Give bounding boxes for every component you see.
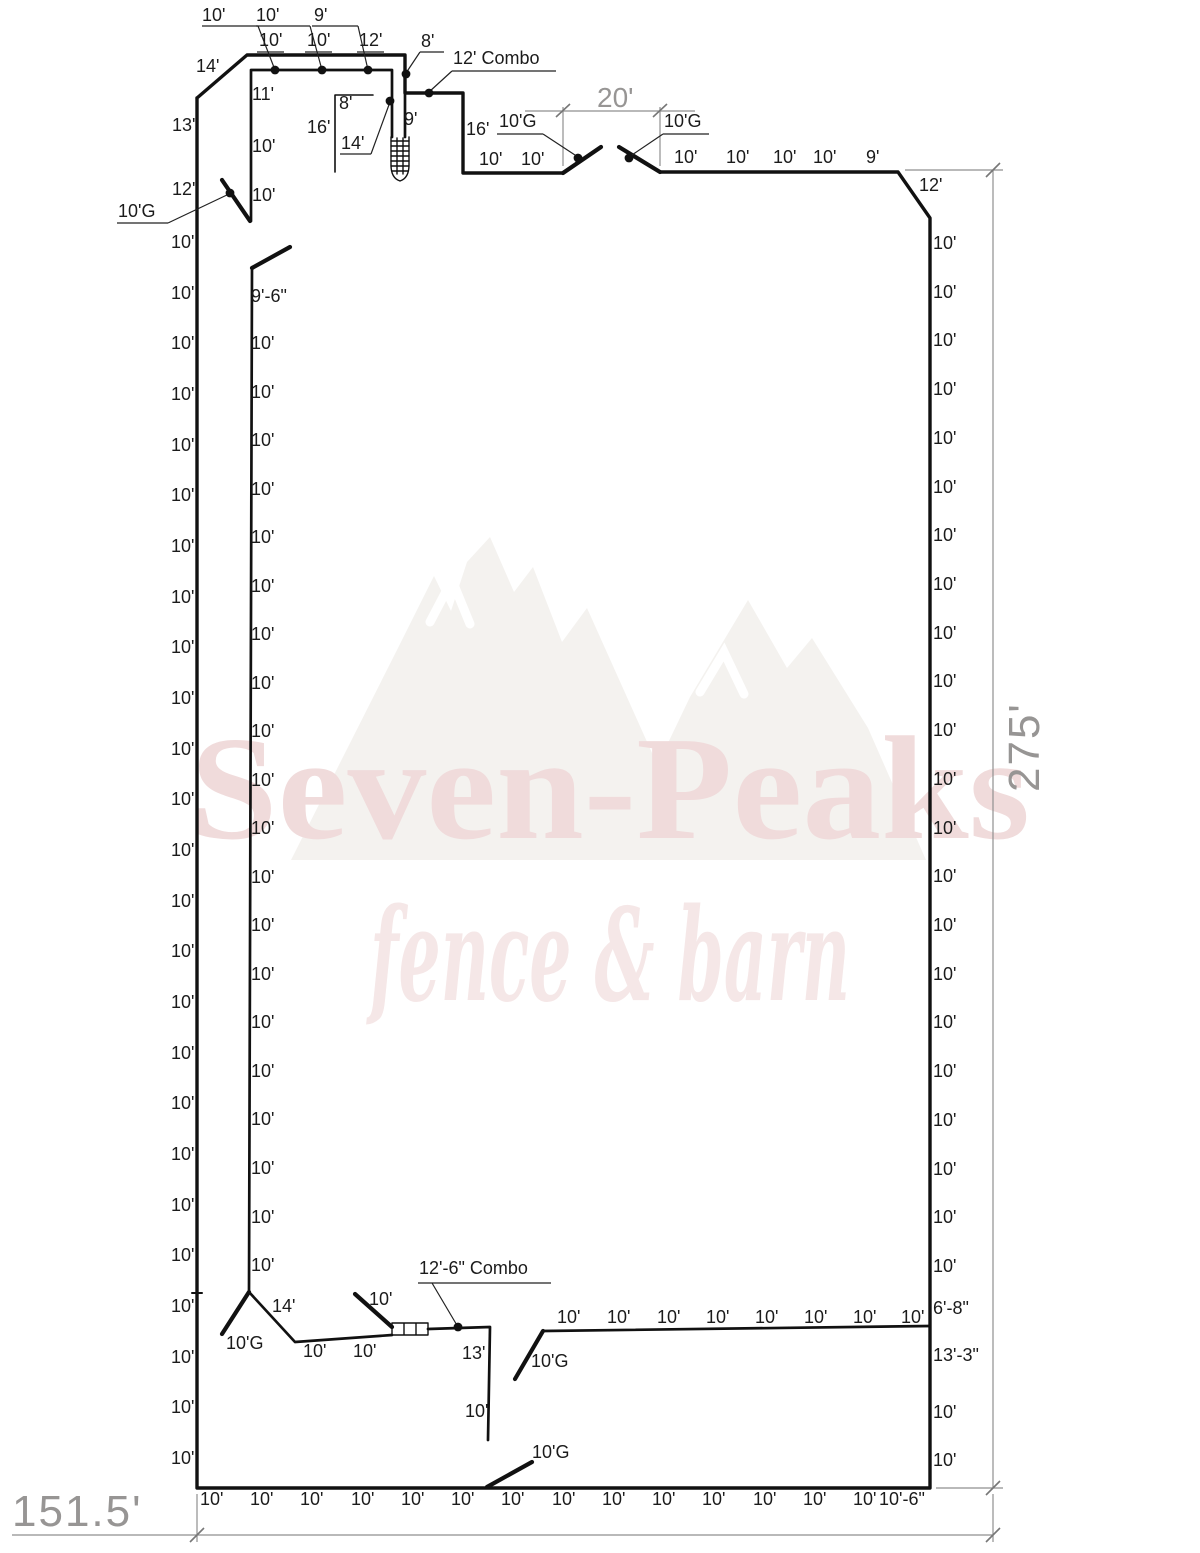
inner-panel-label: 10'	[251, 480, 274, 499]
watermark-brand-text: Seven-Peaks	[190, 707, 1030, 871]
inner-panel-label: 10'	[251, 868, 274, 887]
right-panel-label: 10'	[933, 770, 956, 789]
panel-label: 14'	[196, 57, 219, 76]
left-panel-label: 10'	[171, 284, 194, 303]
right-panel-label: 10'	[933, 478, 956, 497]
right-panel-label: 10'	[933, 380, 956, 399]
bottom-panel-label: 10'	[451, 1490, 474, 1509]
inner-bottom-panel-label: 10'	[804, 1308, 827, 1327]
right-panel-label: 10'	[933, 965, 956, 984]
inner-panel-label: 10'	[251, 771, 274, 790]
overall-height-dimension: 275'	[1000, 702, 1050, 792]
inner-panel-label: 10'	[251, 965, 274, 984]
gate-label: 10'G	[499, 112, 536, 131]
left-panel-label: 10'	[171, 1449, 194, 1468]
inner-panel-label: 10'	[251, 528, 274, 547]
panel-label: 16'	[307, 118, 330, 137]
gate-opening-dimension: 20'	[597, 82, 634, 114]
watermark-tagline-text: fence & barn	[366, 881, 850, 1031]
panel-label: 9'	[404, 110, 417, 129]
right-panel-label: 10'	[933, 575, 956, 594]
gate-label: 10'G	[532, 1443, 569, 1462]
leader-label: 10'	[202, 6, 225, 25]
bottom-panel-label: 10'	[200, 1490, 223, 1509]
panel-label: 16'	[466, 120, 489, 139]
left-panel-label: 10'	[171, 1044, 194, 1063]
right-panel-label: 10'	[933, 526, 956, 545]
panel-label: 10'	[521, 150, 544, 169]
leader-label: 10'	[256, 6, 279, 25]
panel-label: 12'	[919, 176, 942, 195]
gate-label: 10'G	[226, 1334, 263, 1353]
right-panel-label: 10'	[933, 283, 956, 302]
right-panel-label: 10'	[933, 867, 956, 886]
leader-label: 12'-6" Combo	[419, 1259, 528, 1278]
panel-label: 10'	[307, 31, 330, 50]
watermark: Seven-Peaks fence & barn	[190, 537, 1030, 1031]
left-panel-label: 10'	[171, 233, 194, 252]
inner-panel-label: 10'	[251, 625, 274, 644]
right-panel-label: 10'	[933, 1013, 956, 1032]
right-panel-label: 10'	[933, 624, 956, 643]
panel-label: 10'	[303, 1342, 326, 1361]
inner-panel-label: 10'	[251, 383, 274, 402]
left-panel-label: 10'	[171, 638, 194, 657]
right-panel-label: 10'	[933, 721, 956, 740]
left-panel-label: 10'	[171, 993, 194, 1012]
gate-label: 10'G	[118, 202, 155, 221]
panel-label: 13'	[172, 116, 195, 135]
bottom-panel-label: 10'	[501, 1490, 524, 1509]
right-panel-label: 13'-3"	[933, 1346, 979, 1365]
combo-gate-symbol-top	[391, 137, 409, 181]
right-panel-label: 10'	[933, 1257, 956, 1276]
panel-label: 12'	[359, 31, 382, 50]
right-panel-label: 6'-8"	[933, 1299, 969, 1318]
inner-panel-label: 10'	[251, 916, 274, 935]
left-panel-label: 10'	[171, 588, 194, 607]
fence-plan-drawing: Seven-Peaks fence & barn	[0, 0, 1200, 1553]
left-panel-label: 10'	[171, 1348, 194, 1367]
bottom-panel-label: 10'	[853, 1490, 876, 1509]
left-panel-label: 10'	[171, 537, 194, 556]
right-panel-label: 10'	[933, 331, 956, 350]
inner-panel-label: 10'	[251, 819, 274, 838]
right-panel-label: 10'	[933, 1403, 956, 1422]
inner-panel-label: 10'	[251, 431, 274, 450]
bottom-panel-label: 10'	[652, 1490, 675, 1509]
leader-label: 12' Combo	[453, 49, 539, 68]
inner-panel-label: 10'	[251, 577, 274, 596]
panel-label: 14'	[272, 1297, 295, 1316]
inner-panel-label: 10'	[251, 1013, 274, 1032]
inner-bottom-panel-label: 10'	[755, 1308, 778, 1327]
bottom-panel-label: 10'	[300, 1490, 323, 1509]
right-panel-label: 10'	[933, 1111, 956, 1130]
gate-label: 10'G	[531, 1352, 568, 1371]
right-panel-label: 10'	[933, 916, 956, 935]
leader-label: 9'	[314, 6, 327, 25]
inner-bottom-panel-label: 10'	[853, 1308, 876, 1327]
inner-bottom-panel-label: 10'	[901, 1308, 924, 1327]
right-panel-label: 10'	[933, 1208, 956, 1227]
bottom-panel-label: 10'	[753, 1490, 776, 1509]
leader-label: 14'	[341, 134, 364, 153]
panel-label: 13'	[462, 1344, 485, 1363]
inner-panel-label: 10'	[251, 1256, 274, 1275]
left-panel-label: 10'	[171, 1094, 194, 1113]
left-panel-label: 10'	[171, 841, 194, 860]
inner-bottom-panel-label: 10'	[657, 1308, 680, 1327]
bottom-panel-label: 10'	[702, 1490, 725, 1509]
bottom-panel-label: 10'-6"	[879, 1490, 925, 1509]
panel-label: 10'	[479, 150, 502, 169]
left-panel-label: 10'	[171, 334, 194, 353]
left-panel-label: 10'	[171, 1246, 194, 1265]
panel-label: 10'	[252, 137, 275, 156]
inner-panel-label: 10'	[251, 674, 274, 693]
panel-label: 10'	[813, 148, 836, 167]
left-panel-label: 10'	[171, 790, 194, 809]
left-panel-label: 10'	[171, 942, 194, 961]
panel-label: 12'	[172, 180, 195, 199]
left-panel-label: 10'	[171, 689, 194, 708]
right-panel-label: 10'	[933, 1160, 956, 1179]
left-panel-label: 10'	[171, 1297, 194, 1316]
bottom-panel-label: 10'	[351, 1490, 374, 1509]
gate-label: 10'	[369, 1290, 392, 1309]
inner-bottom-panel-label: 10'	[607, 1308, 630, 1327]
inner-panel-label: 10'	[251, 1110, 274, 1129]
right-panel-label: 10'	[933, 1062, 956, 1081]
inner-panel-label: 10'	[251, 334, 274, 353]
right-panel-label: 10'	[933, 1451, 956, 1470]
panel-label: 10'	[674, 148, 697, 167]
right-panel-label: 10'	[933, 429, 956, 448]
bottom-panel-label: 10'	[401, 1490, 424, 1509]
inner-panel-label: 10'	[251, 722, 274, 741]
left-panel-label: 10'	[171, 1145, 194, 1164]
inner-bottom-panel-label: 10'	[706, 1308, 729, 1327]
left-panel-label: 10'	[171, 1196, 194, 1215]
leader-label: 8'	[421, 32, 434, 51]
bottom-panel-label: 10'	[552, 1490, 575, 1509]
gate-label: 10'G	[664, 112, 701, 131]
overall-width-dimension: 151.5'	[12, 1487, 143, 1537]
panel-label: 8'	[339, 94, 352, 113]
left-panel-label: 10'	[171, 1398, 194, 1417]
inner-panel-label: 9'-6"	[251, 287, 287, 306]
right-panel-label: 10'	[933, 672, 956, 691]
panel-label: 10'	[259, 31, 282, 50]
panel-label: 10'	[465, 1402, 488, 1421]
left-panel-label: 10'	[171, 385, 194, 404]
left-panel-label: 10'	[171, 740, 194, 759]
panel-label: 11'	[252, 85, 274, 104]
combo-gate-symbol-bottom	[392, 1323, 428, 1335]
bottom-panel-label: 10'	[602, 1490, 625, 1509]
bottom-panel-label: 10'	[250, 1490, 273, 1509]
inner-panel-label: 10'	[251, 1062, 274, 1081]
bottom-panel-label: 10'	[803, 1490, 826, 1509]
panel-label: 10'	[773, 148, 796, 167]
panel-label: 10'	[353, 1342, 376, 1361]
right-panel-label: 10'	[933, 819, 956, 838]
left-panel-label: 10'	[171, 892, 194, 911]
inner-panel-label: 10'	[251, 1159, 274, 1178]
inner-panel-label: 10'	[251, 1208, 274, 1227]
inner-bottom-panel-label: 10'	[557, 1308, 580, 1327]
right-panel-label: 10'	[933, 234, 956, 253]
panel-label: 9'	[866, 148, 879, 167]
panel-label: 10'	[726, 148, 749, 167]
left-panel-label: 10'	[171, 436, 194, 455]
panel-label: 10'	[252, 186, 275, 205]
left-panel-label: 10'	[171, 486, 194, 505]
